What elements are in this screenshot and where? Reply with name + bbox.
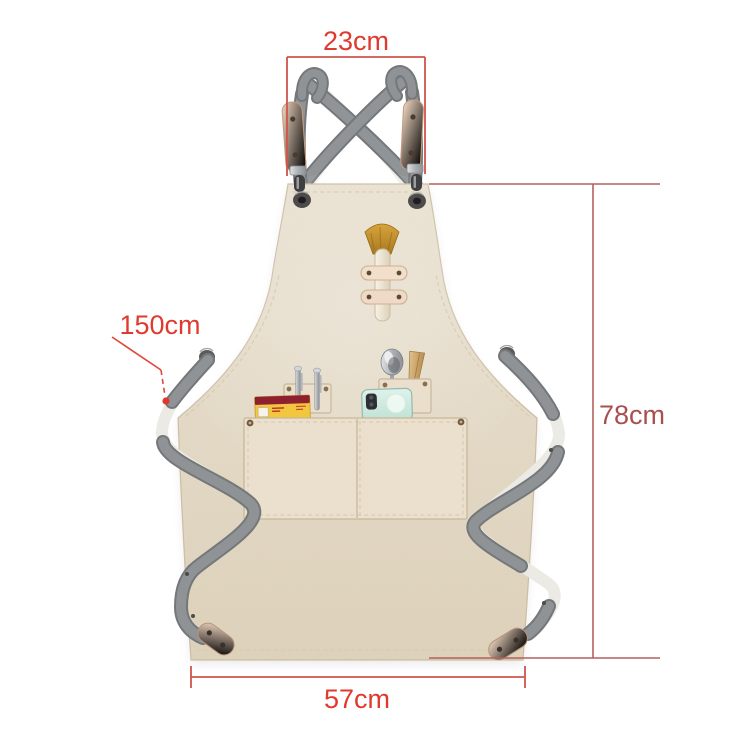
- apron-dimension-image: 23cm 150cm 78cm 57cm: [0, 0, 750, 750]
- dimension-label-strap-length: 150cm: [119, 310, 200, 340]
- dimension-bottom-width: 57cm: [191, 666, 525, 714]
- dimension-label-top-width: 23cm: [323, 26, 389, 56]
- brush-handle: [375, 249, 390, 321]
- dimension-label-height: 78cm: [599, 400, 665, 430]
- dimension-label-bottom-width: 57cm: [324, 684, 390, 714]
- product-photo: 23cm 150cm 78cm 57cm: [0, 0, 750, 750]
- phone: [361, 388, 412, 422]
- front-pocket: [244, 418, 467, 519]
